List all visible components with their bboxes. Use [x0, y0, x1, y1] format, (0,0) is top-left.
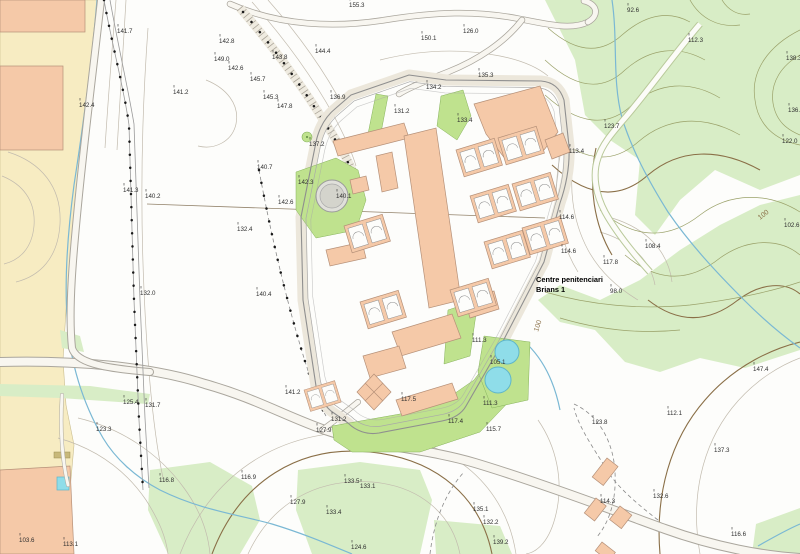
- elevation-label: 125.4: [123, 399, 139, 406]
- elevation-label: 145.7: [250, 76, 266, 83]
- elevation-label: 147.8: [277, 103, 293, 110]
- place-name-line1: Centre penitenciari: [536, 275, 603, 284]
- elevation-label: 141.3: [123, 187, 139, 194]
- elevation-label: 133.1: [360, 483, 376, 490]
- elevation-label: 117.4: [448, 418, 464, 425]
- elevation-label: 132.6: [653, 493, 669, 500]
- elevation-label: 141.2: [285, 389, 301, 396]
- elevation-label: 115.7: [486, 426, 502, 433]
- elevation-label: 103.6: [19, 537, 35, 544]
- elevation-label: 142.8: [219, 38, 235, 45]
- topographic-map[interactable]: Centre penitenciari Brians 1 141.7141.21…: [0, 0, 800, 554]
- place-name-line2: Brians 1: [536, 285, 565, 294]
- elevation-label: 134.2: [426, 84, 442, 91]
- elevation-label: 114.6: [561, 248, 577, 255]
- urban-building: [0, 0, 85, 32]
- elevation-label: 143.8: [272, 54, 288, 61]
- water-basin: [485, 367, 511, 393]
- elevation-label: 113.1: [63, 541, 79, 548]
- elevation-label: 142.3: [298, 179, 314, 186]
- elevation-label: 149.0: [214, 56, 230, 63]
- elevation-label: 140.7: [257, 164, 273, 171]
- elevation-label: 150.1: [421, 35, 437, 42]
- elevation-label: 127.9: [290, 499, 306, 506]
- elevation-label: 123.3: [96, 426, 112, 433]
- elevation-label: 136.3: [788, 107, 800, 114]
- urban-building: [0, 66, 63, 150]
- elevation-label: 112.1: [667, 410, 683, 417]
- elevation-label: 142.6: [228, 65, 244, 72]
- elevation-label: 92.6: [627, 7, 640, 14]
- elevation-label: 142.4: [79, 102, 95, 109]
- elevation-label: 139.2: [493, 539, 509, 546]
- elevation-label: 124.6: [351, 544, 367, 551]
- elevation-label: 114.3: [600, 498, 616, 505]
- elevation-label: 117.5: [401, 396, 417, 403]
- elevation-label: 123.7: [604, 123, 620, 130]
- elevation-label: 111.3: [483, 400, 498, 407]
- elevation-label: 142.6: [278, 199, 294, 206]
- elevation-label: 111.3: [472, 337, 487, 344]
- elevation-label: 126.0: [463, 28, 479, 35]
- elevation-label: 127.9: [316, 427, 332, 434]
- elevation-label: 133.4: [326, 509, 342, 516]
- elevation-label: 113.4: [569, 148, 585, 155]
- elevation-label: 140.1: [336, 193, 352, 200]
- elevation-label: 131.7: [145, 402, 161, 409]
- elevation-label: 133.4: [457, 117, 473, 124]
- elevation-label: 102.6: [784, 222, 800, 229]
- elevation-label: 116.6: [731, 531, 747, 538]
- elevation-label: 140.2: [145, 193, 161, 200]
- elevation-label: 135.1: [473, 506, 489, 513]
- elevation-label: 144.4: [315, 48, 331, 55]
- elevation-label: 123.8: [592, 419, 608, 426]
- elevation-label: 147.4: [753, 366, 769, 373]
- elevation-label: 114.6: [559, 214, 575, 221]
- elevation-label: 131.2: [394, 108, 410, 115]
- elevation-label: 145.3: [263, 94, 279, 101]
- elevation-label: 116.9: [241, 474, 257, 481]
- elevation-label: 117.8: [603, 259, 619, 266]
- map-canvas: Centre penitenciari Brians 1 141.7141.21…: [0, 0, 800, 554]
- elevation-label: 141.7: [117, 28, 133, 35]
- elevation-label: 132.0: [140, 290, 156, 297]
- elevation-label: 116.8: [159, 477, 175, 484]
- elevation-label: 155.3: [349, 2, 365, 9]
- elevation-label: 105.1: [490, 359, 506, 366]
- elevation-label: 135.3: [478, 72, 494, 79]
- elevation-label: 131.2: [331, 416, 347, 423]
- elevation-label: 138.3: [786, 55, 800, 62]
- elevation-label: 122.0: [782, 138, 798, 145]
- elevation-label: 140.4: [256, 291, 272, 298]
- elevation-label: 136.9: [330, 94, 346, 101]
- elevation-label: 137.2: [309, 141, 325, 148]
- elevation-label: 108.4: [645, 243, 661, 250]
- elevation-label: 141.2: [173, 89, 189, 96]
- elevation-label: 112.3: [688, 37, 704, 44]
- elevation-label: 137.3: [714, 447, 730, 454]
- elevation-label: 98.0: [610, 288, 623, 295]
- elevation-label: 132.2: [483, 519, 499, 526]
- elevation-label: 132.4: [237, 226, 253, 233]
- elevation-label: 133.5: [344, 478, 360, 485]
